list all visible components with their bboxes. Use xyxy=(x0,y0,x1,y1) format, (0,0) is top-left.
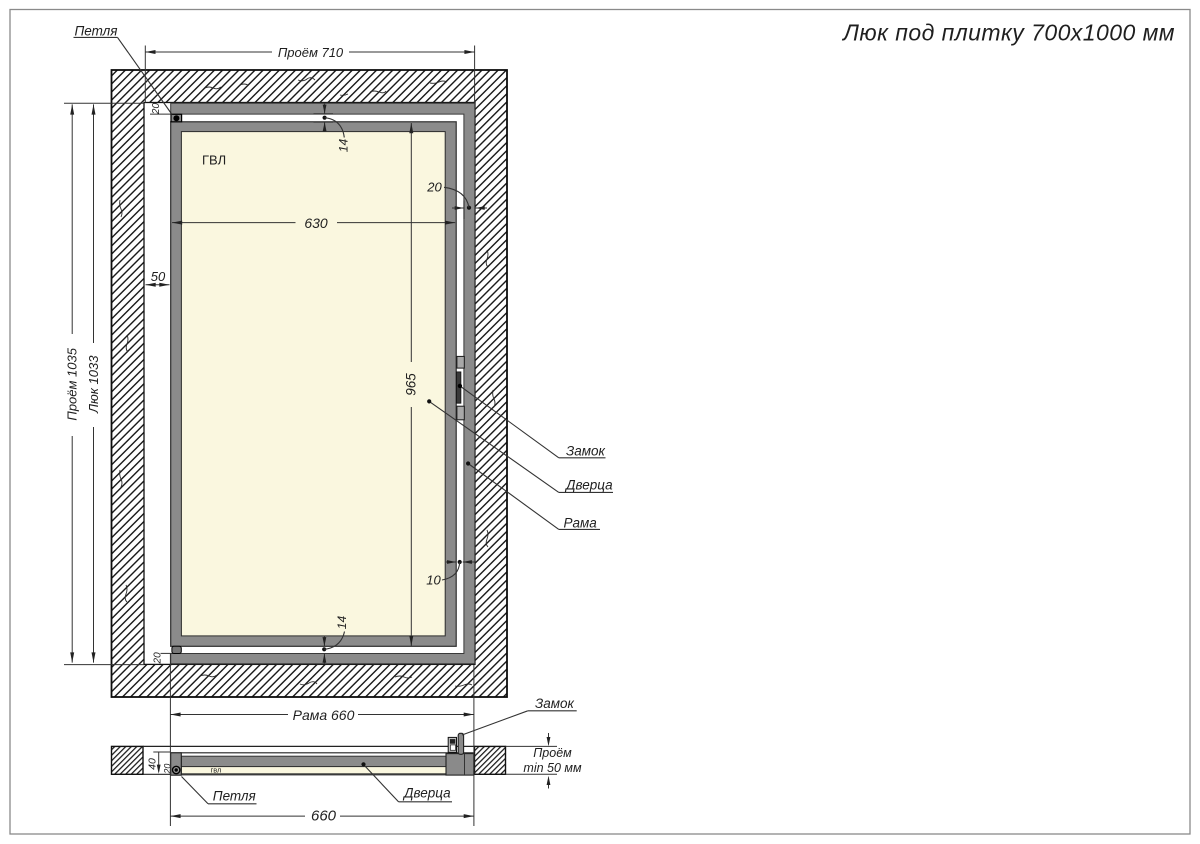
svg-text:630: 630 xyxy=(304,215,328,231)
svg-text:Замок: Замок xyxy=(535,696,575,711)
svg-text:Проём 1035: Проём 1035 xyxy=(65,347,80,420)
svg-text:Рама 660: Рама 660 xyxy=(293,707,355,723)
svg-text:50: 50 xyxy=(151,269,166,284)
svg-text:20: 20 xyxy=(151,103,162,116)
svg-text:660: 660 xyxy=(311,808,337,825)
svg-text:ГВЛ: ГВЛ xyxy=(202,153,226,168)
svg-text:20: 20 xyxy=(152,652,163,665)
svg-text:Люк под плитку 700х1000 мм: Люк под плитку 700х1000 мм xyxy=(841,20,1175,46)
svg-text:Петля: Петля xyxy=(75,23,118,38)
svg-text:Дверца: Дверца xyxy=(402,786,451,801)
svg-text:14: 14 xyxy=(337,139,351,153)
svg-text:Петля: Петля xyxy=(213,788,256,803)
svg-text:40: 40 xyxy=(147,758,159,770)
svg-text:10: 10 xyxy=(426,573,441,588)
svg-text:Рама: Рама xyxy=(564,516,598,531)
svg-text:min 50 мм: min 50 мм xyxy=(523,761,582,775)
svg-text:Дверца: Дверца xyxy=(564,478,613,493)
svg-text:14: 14 xyxy=(335,616,349,630)
svg-text:гвл: гвл xyxy=(211,766,222,775)
svg-text:Люк 1033: Люк 1033 xyxy=(86,355,101,414)
svg-text:20: 20 xyxy=(426,180,442,195)
svg-text:965: 965 xyxy=(404,373,419,396)
svg-text:Проём: Проём xyxy=(533,746,572,760)
svg-text:Проём 710: Проём 710 xyxy=(278,45,344,60)
svg-text:Замок: Замок xyxy=(566,444,606,459)
